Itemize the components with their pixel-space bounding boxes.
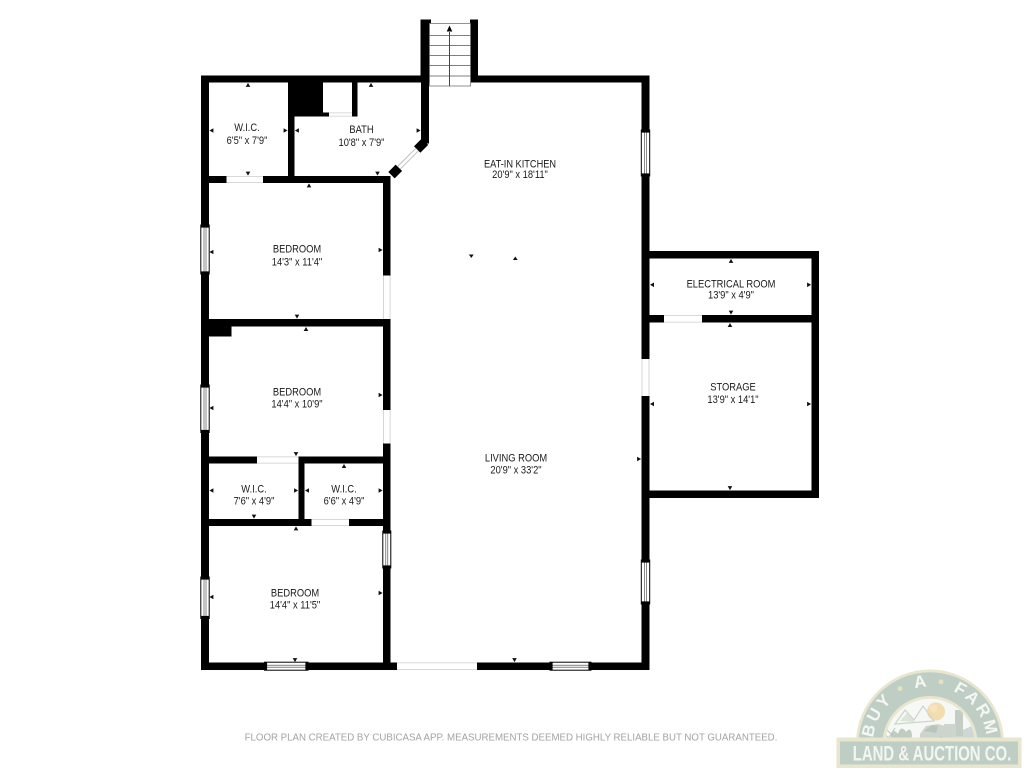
svg-text:W.I.C.: W.I.C. (331, 484, 356, 496)
svg-text:10'8" x 7'9": 10'8" x 7'9" (339, 137, 385, 149)
svg-text:14'4" x 10'9": 14'4" x 10'9" (271, 399, 323, 411)
svg-text:FLOOR PLAN CREATED BY CUBICASA: FLOOR PLAN CREATED BY CUBICASA APP. MEAS… (245, 733, 778, 744)
svg-text:BEDROOM: BEDROOM (273, 244, 321, 256)
svg-text:LAND & AUCTION CO.: LAND & AUCTION CO. (853, 742, 1011, 765)
svg-text:W.I.C.: W.I.C. (234, 122, 259, 134)
svg-text:7'6" x 4'9": 7'6" x 4'9" (234, 496, 275, 508)
svg-text:BATH: BATH (349, 124, 373, 136)
svg-text:6'6" x 4'9": 6'6" x 4'9" (324, 496, 365, 508)
svg-text:W.I.C.: W.I.C. (241, 484, 266, 496)
svg-text:14'3" x 11'4": 14'3" x 11'4" (272, 257, 323, 269)
svg-text:BEDROOM: BEDROOM (271, 588, 319, 600)
svg-text:13'9" x 14'1": 13'9" x 14'1" (707, 394, 759, 406)
svg-text:6'5" x 7'9": 6'5" x 7'9" (227, 135, 268, 147)
svg-text:20'9" x 18'11": 20'9" x 18'11" (492, 170, 548, 182)
svg-text:STORAGE: STORAGE (710, 382, 756, 394)
svg-text:LIVING ROOM: LIVING ROOM (485, 453, 547, 465)
svg-text:20'9" x 33'2": 20'9" x 33'2" (490, 465, 542, 477)
svg-text:BEDROOM: BEDROOM (273, 387, 321, 399)
svg-text:13'9" x 4'9": 13'9" x 4'9" (708, 290, 754, 302)
svg-text:14'4" x 11'5": 14'4" x 11'5" (270, 600, 321, 612)
